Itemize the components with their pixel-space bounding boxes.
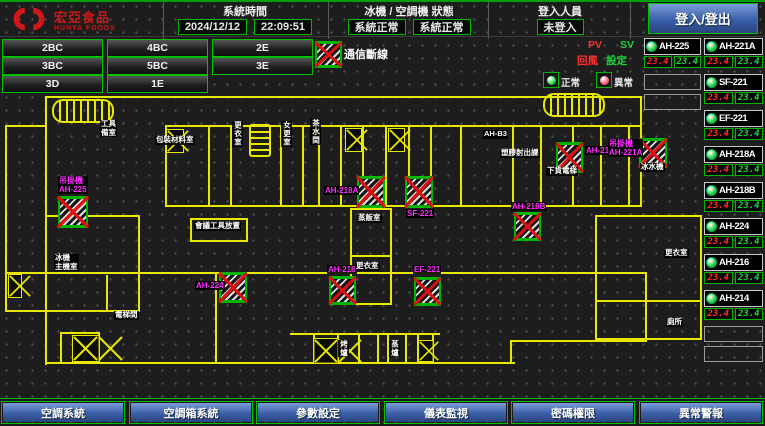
room-label: AH-B3	[483, 130, 508, 139]
map-wall	[385, 125, 387, 207]
map-wall	[595, 215, 702, 217]
room-label: 包裝材料室	[155, 136, 195, 145]
bottom-nav-bar: 空調系統空調箱系統參數設定儀表監視密碼權限異常警報	[0, 398, 765, 426]
device-AH-225[interactable]	[58, 196, 88, 228]
room-label: 會議工具放置	[194, 222, 241, 231]
map-wall	[190, 240, 248, 242]
map-wall	[350, 255, 392, 257]
nav-cell: 參數設定	[256, 401, 380, 424]
room-label: 冰機 主機室	[54, 254, 79, 271]
device-SF-221[interactable]	[405, 176, 433, 208]
map-wall	[5, 310, 47, 312]
map-wall	[5, 125, 7, 312]
room-label: 蒸飯室	[357, 214, 382, 223]
map-wall	[45, 362, 222, 364]
room-label: 電梯間	[114, 311, 139, 320]
device-label-EF-221: EF-221	[413, 265, 441, 274]
nav-button-密碼權限[interactable]: 密碼權限	[513, 403, 633, 422]
room-label: 烤爐	[338, 340, 349, 357]
map-wall	[700, 215, 702, 340]
device-AH-218B[interactable]	[514, 212, 541, 241]
fan-damper-icon	[313, 338, 339, 364]
room-label: 下貨電梯	[546, 167, 578, 176]
map-wall	[512, 125, 514, 207]
device-label-AH-218A: AH-218A	[324, 186, 359, 195]
map-wall	[5, 272, 645, 274]
floor-plan-map: 吊掛機 AH-225AH-218ASF-221AH-214吊掛機 AH-221A…	[0, 0, 765, 426]
device-label-AH-221A: 吊掛機 AH-221A	[608, 139, 643, 157]
map-wall	[595, 338, 702, 340]
map-wall	[106, 275, 108, 312]
map-wall	[595, 215, 597, 340]
nav-cell: 異常警報	[639, 401, 763, 424]
stairs-icon	[543, 93, 605, 117]
hmi-screen: 宏亞食品 HUNYA FOODS 系統時間2024/12/1222:09:51冰…	[0, 0, 765, 426]
map-wall	[540, 125, 542, 207]
room-label: 冰水機	[640, 163, 665, 172]
nav-button-儀表監視[interactable]: 儀表監視	[386, 403, 506, 422]
fan-damper-icon	[388, 128, 405, 152]
device-label-AH-224: AH-224	[195, 281, 225, 290]
map-wall	[165, 205, 642, 207]
nav-cell: 空調箱系統	[129, 401, 253, 424]
map-wall	[215, 362, 515, 364]
room-label: 更衣室	[664, 249, 689, 258]
map-wall	[595, 300, 702, 302]
map-wall	[628, 125, 630, 207]
fan-damper-icon	[8, 274, 22, 298]
map-wall	[190, 218, 192, 242]
device-EF-221[interactable]	[414, 277, 441, 306]
device-label-AH-216: AH-216	[327, 265, 357, 274]
map-wall	[645, 272, 647, 342]
fan-damper-icon	[418, 340, 434, 362]
map-wall	[377, 333, 379, 364]
nav-cell: 密碼權限	[511, 401, 635, 424]
room-label: 塑膠射出課	[500, 149, 540, 158]
map-wall	[510, 340, 512, 364]
map-wall	[302, 125, 304, 207]
room-label: 更衣室	[355, 262, 380, 271]
map-wall	[460, 125, 462, 207]
map-wall	[350, 208, 392, 210]
map-wall	[60, 332, 62, 363]
room-label: 廁所	[666, 318, 683, 327]
map-wall	[5, 125, 47, 127]
nav-cell: 儀表監視	[384, 401, 508, 424]
map-wall	[246, 218, 248, 242]
nav-button-異常警報[interactable]: 異常警報	[641, 403, 761, 422]
fan-damper-icon	[345, 128, 362, 152]
device-AH-218A[interactable]	[357, 176, 385, 208]
stairs-icon	[249, 124, 271, 157]
device-label-AH-218B: AH-218B	[511, 202, 546, 211]
map-wall	[510, 340, 647, 342]
room-label: 工具 備室	[100, 120, 117, 137]
map-wall	[45, 96, 47, 127]
fan-damper-icon	[72, 335, 100, 362]
nav-button-空調系統[interactable]: 空調系統	[3, 403, 123, 422]
map-wall	[190, 218, 248, 220]
map-wall	[208, 125, 210, 207]
map-wall	[45, 125, 47, 365]
nav-button-參數設定[interactable]: 參數設定	[258, 403, 378, 422]
map-wall	[138, 215, 140, 312]
room-label: 更衣室	[232, 121, 243, 147]
device-label-SF-221: SF-221	[406, 209, 434, 218]
device-label-AH-225: 吊掛機 AH-225	[58, 176, 88, 194]
map-wall	[600, 125, 602, 207]
nav-button-空調箱系統[interactable]: 空調箱系統	[131, 403, 251, 422]
room-label: 女更室	[281, 121, 292, 147]
nav-cell: 空調系統	[1, 401, 125, 424]
room-label: 茶水間	[310, 119, 321, 145]
map-wall	[60, 332, 100, 334]
room-label: 蒸爐	[389, 340, 400, 357]
map-wall	[405, 333, 407, 364]
device-AH-216[interactable]	[329, 276, 356, 305]
